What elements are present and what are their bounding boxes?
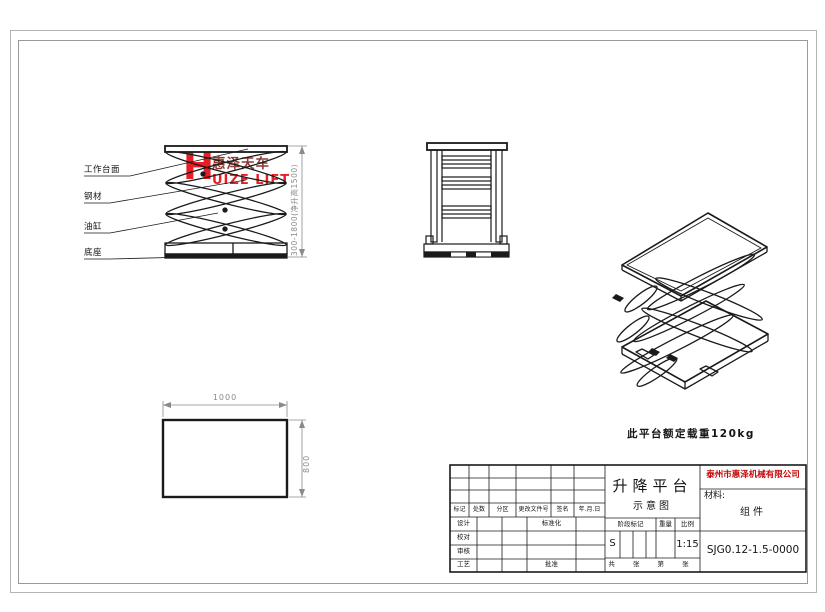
top-view-linework — [163, 420, 287, 497]
scale-label: 比例 — [675, 521, 700, 528]
material-value: 组件 — [700, 508, 806, 518]
company-name: 泰州市惠泽机械有限公司 — [700, 471, 806, 480]
rev-header-docno: 更改文件号 — [516, 507, 551, 513]
sign-row-process: 工艺 — [450, 561, 477, 568]
load-capacity-note: 此平台额定载重120kg — [627, 429, 755, 440]
rev-header-count: 处数 — [469, 507, 489, 513]
sign-row-audit: 审核 — [450, 548, 477, 555]
standardization-label: 标准化 — [527, 520, 576, 527]
rev-header-zone: 分区 — [489, 507, 516, 513]
front-view-linework — [84, 146, 287, 259]
sheet-count-row: 共 张 第 张 — [605, 561, 700, 568]
callout-base-label: 底座 — [84, 249, 102, 258]
sign-row-design: 设计 — [450, 520, 477, 527]
side-view-linework — [424, 143, 509, 257]
drawing-title: 升降平台 — [605, 479, 700, 494]
weight-label: 重量 — [656, 521, 675, 528]
isometric-view-linework — [612, 213, 768, 390]
drawing-sheet: H 惠泽天车 UIZE LIFT — [0, 0, 825, 612]
callout-cylinder-label: 油缸 — [84, 223, 102, 232]
top-view-dimensions — [163, 401, 306, 497]
stage-mark-value: S — [605, 539, 620, 549]
drawing-subtitle: 示意图 — [605, 502, 700, 512]
stage-mark-label: 阶段标记 — [605, 521, 656, 528]
scale-value: 1:15 — [675, 540, 700, 550]
rev-header-sign: 签名 — [551, 507, 574, 513]
rev-header-mark: 标记 — [450, 507, 469, 513]
callout-platform-label: 工作台面 — [84, 166, 120, 175]
cad-linework — [0, 0, 825, 612]
width-dimension-text: 1000 — [205, 394, 245, 402]
approve-label: 批准 — [527, 561, 576, 568]
depth-dimension-text: 800 — [303, 455, 311, 473]
rev-header-date: 年.月.日 — [574, 507, 605, 513]
material-label: 材料: — [704, 492, 725, 501]
drawing-number: SJG0.12-1.5-0000 — [700, 545, 806, 556]
sign-row-check: 校对 — [450, 534, 477, 541]
callout-steel-label: 钢材 — [84, 193, 102, 202]
height-dimension-text: 300-1800(净升高1500) — [291, 164, 299, 256]
